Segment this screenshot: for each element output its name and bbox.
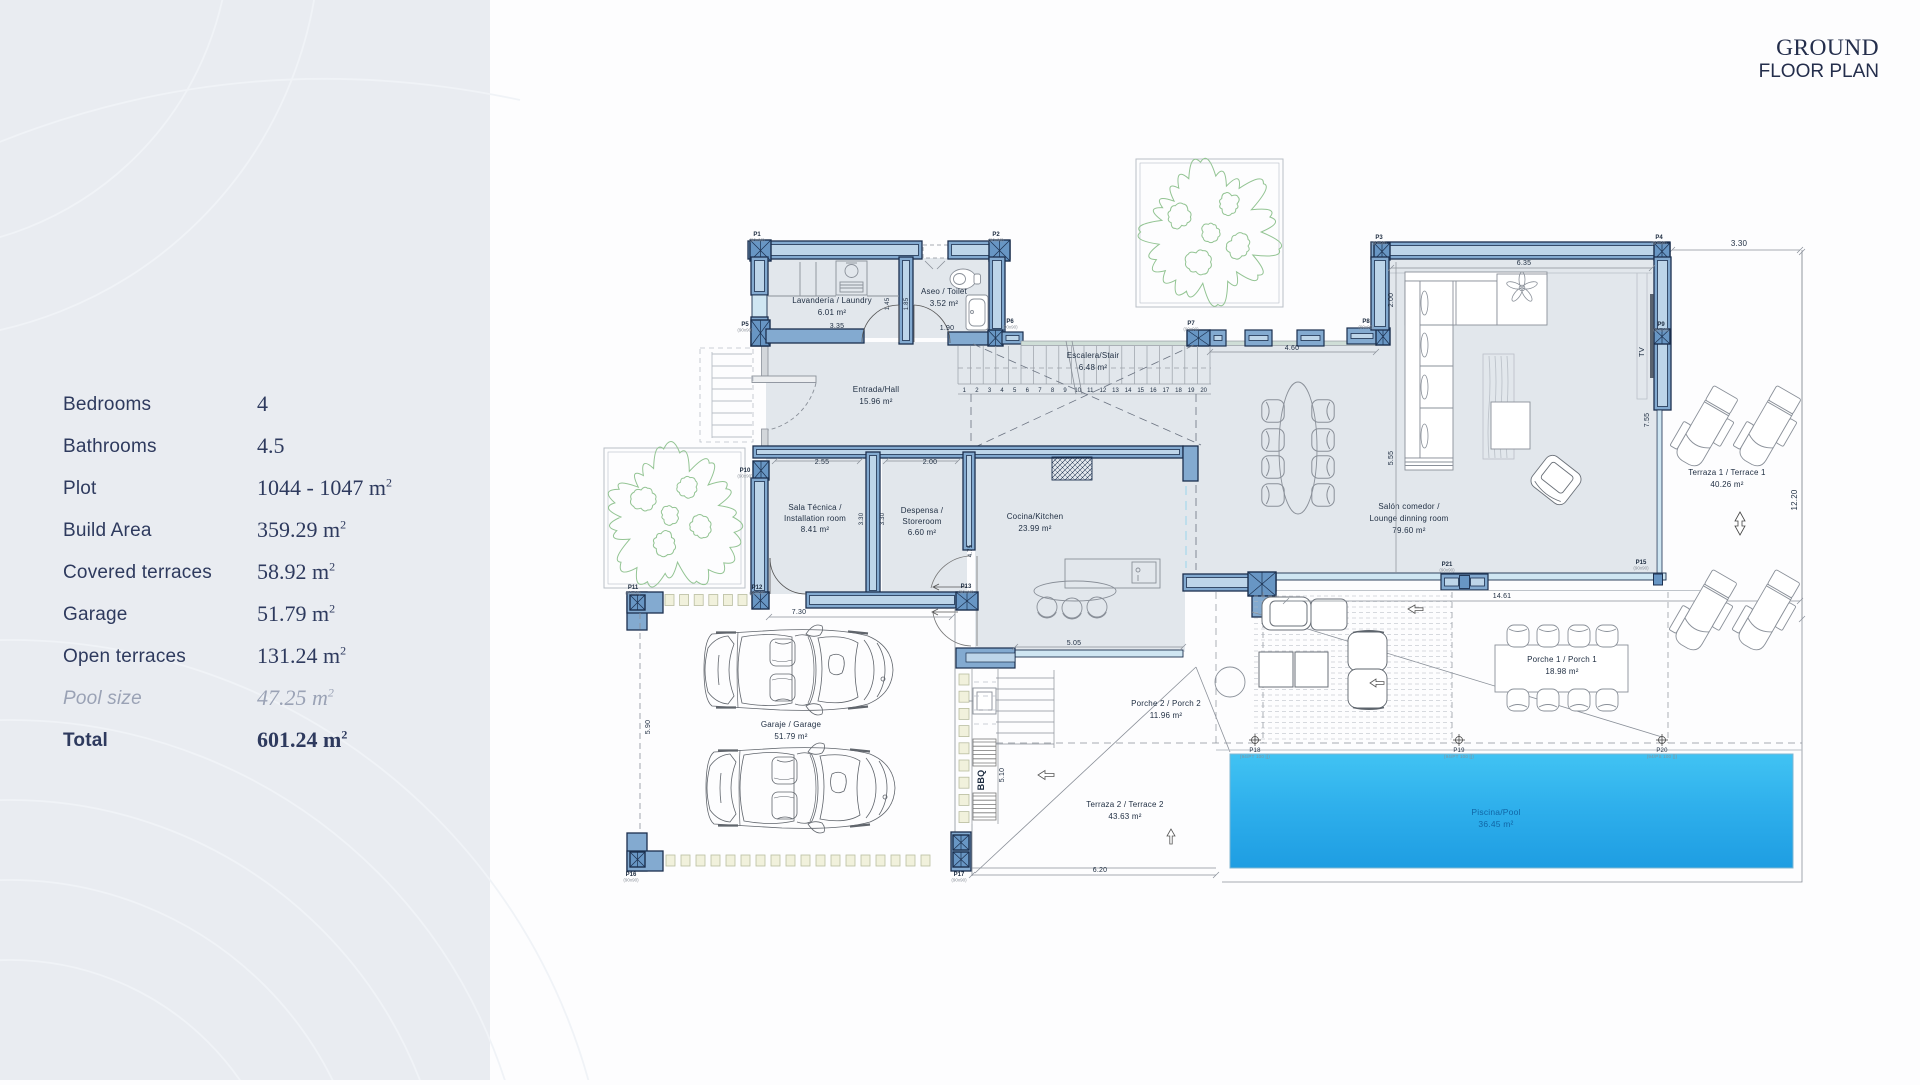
svg-text:7.30: 7.30 — [792, 609, 806, 616]
svg-text:(94/PT 100 []): (94/PT 100 []) — [1240, 754, 1271, 759]
svg-text:(90x90): (90x90) — [1439, 568, 1455, 573]
svg-text:Lounge dinning room: Lounge dinning room — [1370, 514, 1449, 523]
svg-text:Terraza 2 / Terrace 2: Terraza 2 / Terrace 2 — [1086, 800, 1164, 809]
svg-text:4.60: 4.60 — [1285, 345, 1299, 352]
svg-text:(90x90): (90x90) — [749, 591, 765, 596]
svg-text:Salón comedor /: Salón comedor / — [1378, 502, 1440, 511]
svg-text:Installation room: Installation room — [784, 514, 846, 523]
svg-text:40.26 m²: 40.26 m² — [1710, 480, 1743, 489]
svg-text:3.30: 3.30 — [859, 512, 865, 525]
svg-text:16: 16 — [1150, 388, 1157, 394]
svg-text:Escalera/Stair: Escalera/Stair — [1067, 351, 1120, 360]
svg-text:5.55: 5.55 — [1388, 451, 1395, 465]
svg-text:(90x90): (90x90) — [737, 328, 753, 333]
svg-text:TV: TV — [1637, 347, 1646, 357]
svg-text:79.60 m²: 79.60 m² — [1392, 526, 1425, 535]
svg-text:Piscina/Pool: Piscina/Pool — [1471, 807, 1520, 817]
svg-text:(90x90): (90x90) — [1183, 327, 1199, 332]
svg-text:3.35: 3.35 — [830, 323, 844, 330]
svg-text:5.05: 5.05 — [1067, 640, 1081, 647]
svg-text:1.85: 1.85 — [904, 297, 910, 310]
svg-text:Porche 2 / Porch 2: Porche 2 / Porch 2 — [1131, 699, 1201, 708]
svg-text:51.79 m²: 51.79 m² — [774, 732, 807, 741]
svg-text:13: 13 — [1112, 388, 1119, 394]
svg-text:3.30: 3.30 — [1731, 239, 1748, 248]
svg-text:14.61: 14.61 — [1493, 593, 1512, 600]
svg-text:(90x90): (90x90) — [625, 591, 641, 596]
svg-text:1.45: 1.45 — [885, 297, 891, 310]
svg-text:Cocina/Kitchen: Cocina/Kitchen — [1007, 512, 1064, 521]
svg-text:12.20: 12.20 — [1790, 489, 1799, 510]
svg-text:17: 17 — [1163, 388, 1170, 394]
svg-text:Lavandería / Laundry: Lavandería / Laundry — [792, 296, 872, 305]
svg-text:2.00: 2.00 — [1388, 293, 1395, 307]
svg-text:Despensa /: Despensa / — [901, 506, 944, 515]
svg-text:(94/PT 100 []): (94/PT 100 []) — [1444, 754, 1475, 759]
svg-text:23.99 m²: 23.99 m² — [1018, 524, 1051, 533]
svg-text:(90x90): (90x90) — [951, 878, 967, 883]
svg-text:8.41 m²: 8.41 m² — [801, 525, 830, 534]
svg-text:2.00: 2.00 — [923, 459, 937, 466]
svg-text:6.35: 6.35 — [1517, 260, 1531, 267]
svg-text:36.45 m²: 36.45 m² — [1478, 819, 1513, 829]
svg-text:Entrada/Hall: Entrada/Hall — [853, 385, 899, 394]
svg-text:6.48 m²: 6.48 m² — [1079, 363, 1108, 372]
svg-text:(90x90): (90x90) — [749, 238, 765, 243]
svg-text:7.55: 7.55 — [1644, 413, 1651, 427]
svg-text:4.75: 4.75 — [968, 544, 974, 557]
svg-text:43.63 m²: 43.63 m² — [1108, 812, 1141, 821]
svg-text:(90x90): (90x90) — [737, 474, 753, 479]
svg-text:(90x90): (90x90) — [1002, 325, 1018, 330]
svg-text:(90x90): (90x90) — [988, 238, 1004, 243]
svg-text:BBQ: BBQ — [976, 770, 986, 791]
svg-text:19: 19 — [1188, 388, 1195, 394]
svg-text:15: 15 — [1137, 388, 1144, 394]
svg-text:(90x90): (90x90) — [623, 878, 639, 883]
svg-text:2.55: 2.55 — [815, 459, 829, 466]
svg-text:(94/PS 100 []): (94/PS 100 []) — [1647, 754, 1678, 759]
svg-text:12: 12 — [1100, 388, 1107, 394]
svg-text:(90x90): (90x90) — [1371, 241, 1387, 246]
svg-text:(90x90): (90x90) — [1358, 325, 1374, 330]
svg-text:Aseo / Toilet: Aseo / Toilet — [921, 287, 968, 296]
svg-text:3.52 m²: 3.52 m² — [930, 299, 959, 308]
svg-text:15.96 m²: 15.96 m² — [859, 397, 892, 406]
svg-text:3.30: 3.30 — [880, 512, 886, 525]
svg-text:18.98 m²: 18.98 m² — [1545, 667, 1578, 676]
svg-text:Porche 1 / Porch 1: Porche 1 / Porch 1 — [1527, 655, 1597, 664]
svg-text:5.10: 5.10 — [999, 768, 1006, 782]
svg-text:11: 11 — [1087, 388, 1094, 394]
svg-text:5.90: 5.90 — [645, 720, 652, 734]
svg-text:20: 20 — [1200, 388, 1207, 394]
svg-text:1.90: 1.90 — [940, 325, 954, 332]
svg-text:11.96 m²: 11.96 m² — [1150, 711, 1183, 720]
svg-text:Garaje / Garage: Garaje / Garage — [761, 720, 822, 729]
svg-text:Terraza 1 / Terrace 1: Terraza 1 / Terrace 1 — [1688, 468, 1766, 477]
svg-text:(90x90): (90x90) — [1651, 241, 1667, 246]
svg-text:Storeroom: Storeroom — [902, 517, 941, 526]
svg-text:6.20: 6.20 — [1093, 867, 1107, 874]
svg-text:14: 14 — [1125, 388, 1132, 394]
svg-text:6.60 m²: 6.60 m² — [908, 528, 937, 537]
svg-text:Sala Técnica /: Sala Técnica / — [788, 503, 842, 512]
svg-text:(90x90): (90x90) — [958, 590, 974, 595]
svg-text:6.01 m²: 6.01 m² — [818, 308, 847, 317]
svg-text:(90x90): (90x90) — [1633, 566, 1649, 571]
svg-text:(90x90): (90x90) — [1653, 328, 1669, 333]
svg-text:18: 18 — [1175, 388, 1182, 394]
